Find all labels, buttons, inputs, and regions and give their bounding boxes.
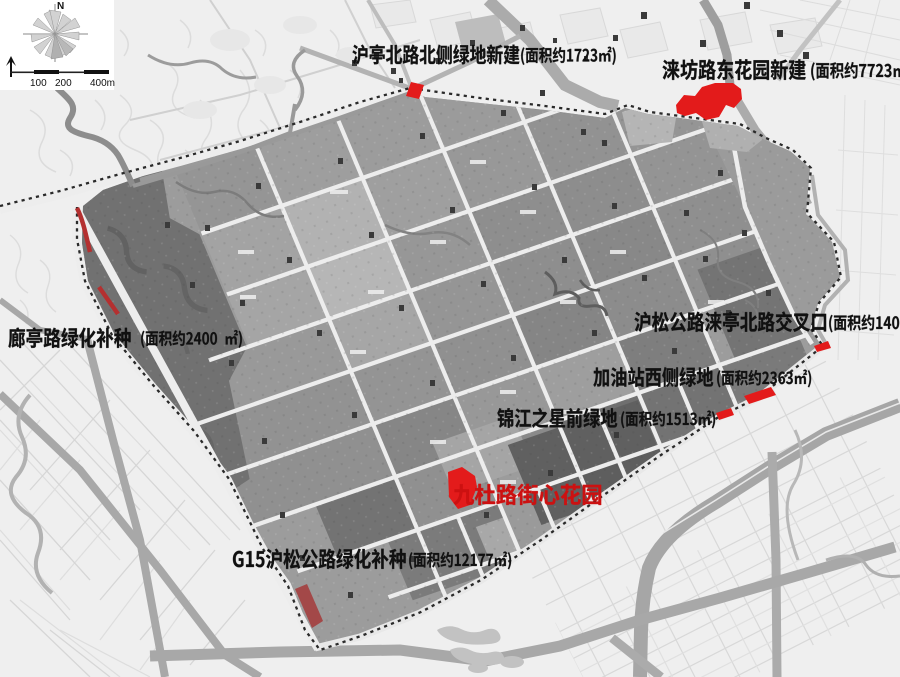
svg-text:100: 100: [30, 78, 47, 89]
svg-text:200: 200: [55, 78, 72, 89]
svg-text:400m: 400m: [90, 78, 115, 89]
svg-text:N: N: [57, 1, 64, 12]
